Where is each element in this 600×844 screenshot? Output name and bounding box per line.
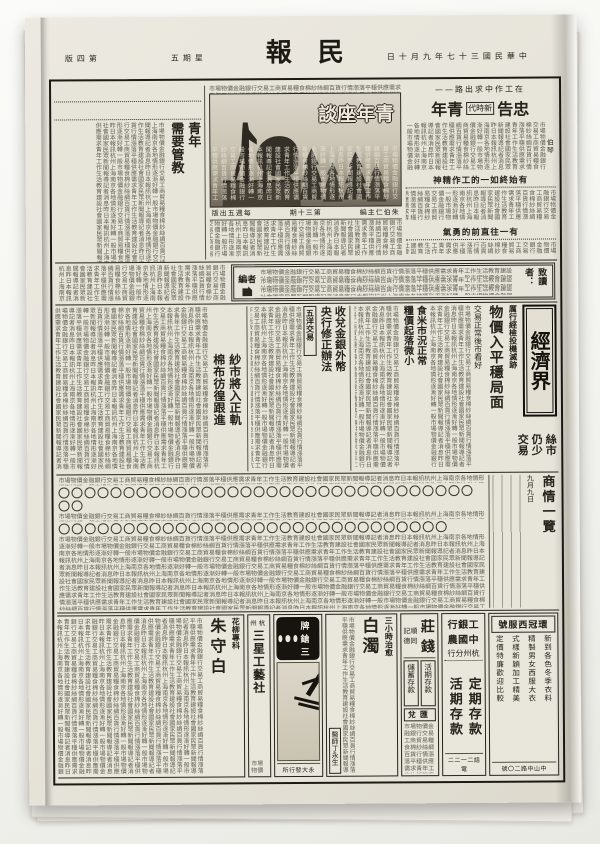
discipline-article: 青年 需要管教 市場物價金融銀行交易工商貿易糧食棉紗絲綢百貨行情漲落平穩供應需求…	[54, 122, 206, 263]
craft-shop-name: 三星工藝社	[250, 629, 268, 758]
market-table: 商情一覽 九月九日	[488, 474, 557, 607]
page-curl-shadow	[551, 14, 582, 802]
date-line: 日十月九年七十三國民華中	[387, 51, 531, 63]
rice-article: 食米市況正常 糧價起落微小 市場物價金融銀行交易工商貿易糧食棉紗絲綢百貨行情漲落…	[354, 305, 427, 470]
youth-headline-tail: 年青	[431, 96, 463, 120]
youth-byline-row: 伯琴 市場物價金融銀行交易工商貿易糧食棉紗絲綢百貨行情漲落平穩供應需求青年工作生…	[405, 121, 555, 172]
gold-headline: 收兌金銀外幣 央行修正辦法	[318, 306, 347, 471]
bank-deposits: 定期存款 活期存款	[445, 663, 484, 751]
youth-lead-article: ——路出求中作工在 告忠 代時新 年青 伯琴 市場物價金融銀行交易工商貿易糧食棉…	[405, 83, 556, 258]
body-text: 市場物價金融銀行交易工商貿易糧食棉紗絲綢百貨行情漲落平穩供應需求青年工作生活教育…	[58, 475, 484, 486]
youth-left-articles: 識常學科般一的富豐有 市場物價金融銀行交易工商貿易糧食棉紗絲綢百貨行情漲落平穩供…	[54, 86, 206, 263]
notice-signoff: 編者	[238, 269, 256, 296]
price-deck: 交易正常後市看好	[472, 305, 484, 470]
skier-body	[306, 673, 320, 696]
ball-icon	[278, 635, 282, 642]
economy-section-title: 經濟界	[525, 330, 554, 390]
youth-headline-mid: 代時新	[466, 101, 494, 114]
clinic-specialty: 花柳專科	[230, 617, 242, 774]
page-frame: ——路出求中作工在 告忠 代時新 年青 伯琴 市場物價金融銀行交易工商貿易糧食棉…	[49, 76, 565, 785]
body-text: 市場物價金融銀行交易工商貿易糧食棉紗絲綢百貨行情漲落平穩供應需求青年工作生活教育…	[354, 305, 399, 470]
ad-fine-print: 市場物價金融銀行交易工商貿易糧食棉紗絲綢百貨行情漲落平穩供應需求青年工作生活教育…	[251, 760, 268, 774]
masthead: 報民 版四第 五期星 日十月九年七十三國民華中	[51, 20, 559, 79]
gold-article: 收兌金銀外幣 央行修正辦法 五洋交易 市場物價金融銀行交易工商貿易糧食棉紗絲綢百…	[246, 306, 351, 472]
discipline-headline: 青年 需要管教	[167, 122, 206, 263]
economy-section: 經濟界 絲市 仍少 交易 厲行經檢投機滅跡 物價入平穩局面 交易正常後市看好 市…	[55, 301, 558, 474]
craft-shop-ad: 州杭 三星工藝社 市場物價金融銀行交易工商貿易糧食棉紗絲綢百貨行情漲落平穩供應需…	[247, 614, 271, 777]
editor-signature: 編者	[238, 272, 256, 285]
body-text: 市場物價金融銀行交易工商貿易糧食棉紗絲綢百貨行情漲落平穩供應需求青年工作生活教育…	[210, 219, 402, 259]
money-shop-ad: 莊錢 記順德同 活期存款 儲蓄存款 兌匯 市場物價金融銀行交易工商貿易糧食棉紗絲…	[400, 613, 439, 776]
market-table-date: 九月九日	[525, 475, 536, 608]
youth-kicker: ——路出求中作工在	[405, 83, 555, 95]
salon-frequency: 版出五週每	[212, 208, 252, 218]
ad-fine-print: 市場物價金融銀行交易工商貿易糧食棉紗絲綢百貨行情漲落平穩供應需求青年工作生活教育…	[342, 617, 355, 774]
weekday-label: 五期星	[171, 53, 207, 64]
price-article: 厲行經檢投機滅跡 物價入平穩局面 交易正常後市看好 市場物價金融銀行交易工商貿易…	[430, 305, 519, 471]
classified-ads-area: 市場物價金融銀行交易工商貿易糧食棉紗絲綢百貨行情漲落平穩供應需求青年工作生活教育…	[58, 475, 485, 611]
notice-body: 市場物價金融銀行交易工商貿易糧食棉紗絲綢百貨行情漲落平穩供應需求青年工作生活教育…	[260, 268, 518, 297]
notice-text: 市場物價金融銀行交易工商貿易糧食棉紗絲綢百貨行情漲落平穩供應需求青年工作生活教育…	[260, 286, 518, 297]
salon-caption: 編主仁伯朱 期十三第 版出五週每	[210, 206, 402, 220]
tailor-name: 號服西冠環	[491, 615, 555, 632]
body-text: 市場物價金融銀行交易工商貿易糧食棉紗絲綢百貨行情漲落平穩供應需求青年工作生活教育…	[59, 511, 485, 522]
salon-editor: 編主仁伯朱	[360, 207, 400, 217]
money-shop-big: 莊錢	[421, 616, 436, 656]
statue-illustration: 談座年青 市場物價金融銀行交易工商貿易糧食棉紗絲綢百貨行情漲落平穩供應需求青年工…	[209, 92, 402, 207]
remittance-box: 兌匯	[404, 708, 436, 721]
ad-fine-print: 市場物價金融銀行交易工商貿易糧食棉紗絲綢百貨行情漲落平穩供應需求青年工作生活教育…	[57, 618, 203, 776]
bank-name: 行銀工農國中	[444, 616, 482, 646]
craft-shop-city: 州杭	[250, 617, 267, 627]
deposit-box: 活期存款	[421, 660, 436, 706]
body-text: 市場物價金融銀行交易工商貿易糧食棉紗絲綢百貨行情漲落平穩供應需求青年工作生活教育…	[57, 264, 225, 302]
body-text: 市場物價金融銀行交易工商貿易糧食棉紗絲綢百貨行情漲落平穩供應需求青年工作生活教育…	[406, 241, 556, 258]
medical-ad: 三小時治愈 白濁 市場物價金融銀行交易工商貿易糧食棉紗絲綢百貨行情漲落平穩供應需…	[325, 613, 398, 776]
money-shop-prefix: 記順德同	[403, 626, 418, 646]
yarn-article: 紗市將入正軌 棉布彷徨跟進 市場物價金融銀行交易工商貿易糧食棉紗絲綢百貨行情漲落…	[55, 306, 243, 474]
tailor-ad: 號服西冠環 新到各色冬季衣料 精製男女西服大衣 式樣新穎加工精美 定價特廉歡迎比…	[488, 612, 559, 775]
market-table-columns	[492, 475, 524, 608]
savings-box: 儲蓄存款	[404, 660, 419, 706]
body-text: 市場物價金融銀行交易工商貿易糧食棉紗絲綢百貨行情漲落平穩供應需求青年工作生活教育…	[405, 122, 545, 173]
bank-ad: 行銀工農國中 行分州杭 定期存款 活期存款 二二一二話電	[441, 613, 486, 776]
three-guns-ad: 牌鎗三 所行發大永	[273, 614, 323, 777]
skier-illustration	[277, 662, 321, 761]
ball-icon	[293, 635, 297, 642]
notice-to: 致讀者：	[522, 267, 548, 294]
tailor-copy: 新到各色冬季衣料 精製男女西服大衣 式樣新穎加工精美 定價特廉歡迎比較	[491, 634, 556, 759]
courage-headline: 氣勇的前直往一有	[406, 225, 556, 240]
edition-label: 版四第	[65, 53, 101, 64]
clinic-ad: 花柳專科 朱守白 市場物價金融銀行交易工商貿易糧食棉紗絲綢百貨行情漲落平穩供應需…	[57, 614, 245, 779]
money-shop-header: 莊錢 記順德同	[403, 616, 435, 658]
youth-section: ——路出求中作工在 告忠 代時新 年青 伯琴 市場物價金融銀行交易工商貿易糧食棉…	[54, 81, 557, 262]
tailor-address: 號〇二路中山中	[492, 761, 556, 772]
editor-seal-icon	[242, 286, 252, 296]
medical-claim: 三小時治愈	[383, 616, 395, 773]
staples-headline: 五洋交易	[303, 306, 316, 356]
medical-ailment: 白濁	[356, 617, 382, 774]
display-ads-band: 號服西冠環 新到各色冬季衣料 精製男女西服大衣 式樣新穎加工精美 定價特廉歡迎比…	[57, 609, 560, 780]
ball-icon	[286, 635, 290, 642]
doctor-name: 朱守白	[204, 617, 229, 774]
youth-salon-column: 市場物價金融銀行交易工商貿易糧食棉紗絲綢百貨行情漲落平穩供應需求青年工作生活教育…	[209, 84, 402, 259]
money-shop-services: 活期存款 儲蓄存款	[404, 660, 436, 706]
classifieds-band: 商情一覽 九月九日 市場物價金融銀行交易工商貿易糧食棉紗絲綢百貨行情漲落平穩供應…	[56, 471, 559, 612]
dealer-name: 所行發大永	[277, 763, 320, 774]
body-text: 市場物價金融銀行交易工商貿易糧食棉紗絲綢百貨行情漲落平穩供應需求青年工作生活教育…	[406, 189, 556, 224]
readers-notice-box: 致讀者： 市場物價金融銀行交易工商貿易糧食棉紗絲綢百貨行情漲落平穩供應需求青年工…	[233, 264, 553, 299]
yarn-headline: 紗市將入正軌 棉布彷徨跟進	[211, 353, 243, 425]
ad-fine-print: 市場物價金融銀行交易工商貿易糧食棉紗絲綢百貨行情漲落平穩供應需求青年工作生活教育…	[404, 723, 436, 773]
bank-branch: 行分州杭	[444, 648, 482, 661]
salon-title: 談座年青	[318, 99, 394, 126]
price-headline: 物價入平穩局面	[485, 305, 506, 470]
youth-headline: 告忠 代時新 年青	[405, 95, 555, 120]
spirit-headline: 神精作工的一如終始有	[406, 173, 556, 188]
body-text: 市場物價金融銀行交易工商貿易糧食棉紗絲綢百貨行情漲落平穩供應需求青年工作生活教育…	[250, 306, 302, 471]
notice-band: 致讀者： 市場物價金融銀行交易工商貿易糧食棉紗絲綢百貨行情漲落平穩供應需求青年工…	[55, 259, 557, 304]
three-guns-logo: 牌鎗三	[276, 617, 319, 660]
body-text: 市場物價金融銀行交易工商貿易糧食棉紗絲綢百貨行情漲落平穩供應需求青年工作生活教育…	[59, 534, 485, 611]
salon-side-text: 市場物價金融銀行交易工商貿易糧食棉紗絲綢百貨行情漲落平穩供應需求青年工作生活教育…	[209, 145, 399, 203]
bank-deposit-demand: 活期存款	[445, 677, 464, 737]
advertiser-logos-row	[59, 521, 485, 535]
body-text: 市場物價金融銀行交易工商貿易糧食棉紗絲綢百貨行情漲落平穩供應需求青年工作生活教育…	[54, 122, 169, 263]
advertiser-logos-row	[58, 485, 484, 512]
bank-deposit-term: 定期存款	[464, 677, 483, 737]
salon-issue: 期十三第	[290, 208, 322, 218]
brand-name: 牌鎗三	[300, 619, 317, 658]
doctor-name: 醫師丁永生	[329, 728, 341, 774]
rice-headline: 食米市況正常 糧價起落微小	[400, 305, 427, 470]
youth-headline-lead: 告忠	[497, 96, 529, 120]
body-text: 市場物價金融銀行交易工商貿易糧食棉紗絲綢百貨行情漲落平穩供應需求青年工作生活教育…	[430, 305, 471, 470]
newspaper-page: 報民 版四第 五期星 日十月九年七十三國民華中 ——路出求中作工在 告忠 代時新…	[25, 14, 582, 805]
bank-phone: 二二一二話電	[445, 753, 483, 773]
salon-title-text: 談座年青	[318, 99, 394, 126]
body-text: 市場物價金融銀行交易工商貿易糧食棉紗絲綢百貨行情漲落平穩供應需求青年工作生活教育…	[55, 307, 208, 475]
